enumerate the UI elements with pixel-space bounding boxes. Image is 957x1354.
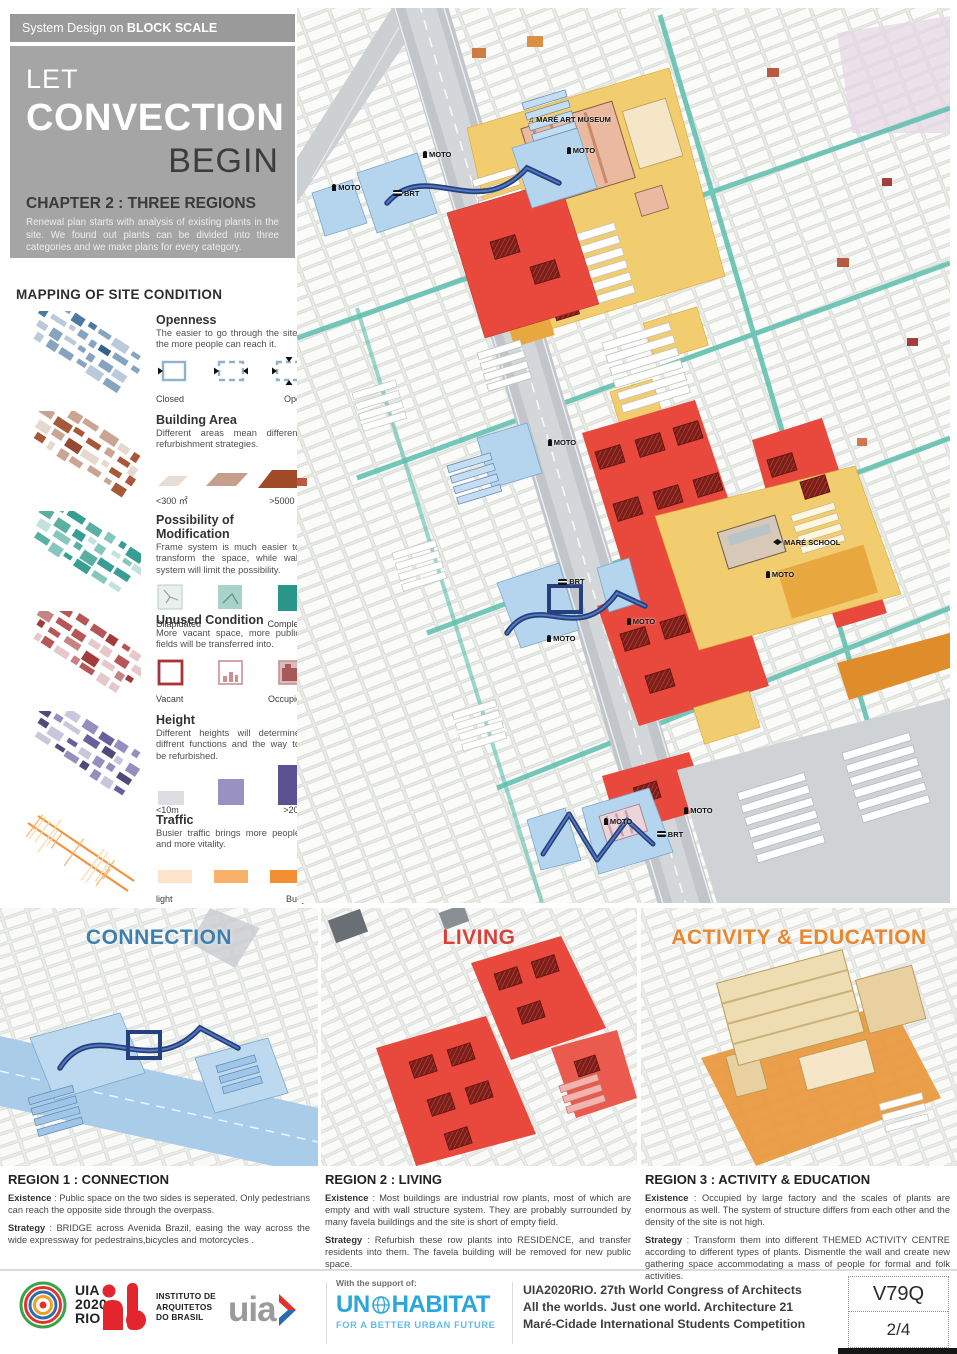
unhabitat-logo: With the support of: UN HABITAT FOR A BE… [336, 1278, 506, 1330]
music-icon: ♫ [528, 116, 534, 123]
map-label-text: MOTO [633, 617, 655, 626]
region-2-strategy: Strategy : Refurbish these row plants in… [325, 1234, 631, 1270]
legend-item-name: Possibility of Modification [156, 513, 300, 541]
legend-item-name: Traffic [156, 813, 300, 827]
map-label: MOTO [548, 438, 576, 447]
legend-item-desc: Busier traffic brings more people and mo… [156, 828, 300, 851]
map-label: MOTO [627, 617, 655, 626]
legend-icon-row [156, 654, 300, 696]
map-label: MOTO [332, 183, 360, 192]
moto-icon [547, 635, 551, 642]
map-label: ♫MARÉ ART MUSEUM [528, 115, 611, 124]
legend-label-left: Closed [156, 394, 184, 404]
board-page-number: 2/4 [849, 1312, 948, 1347]
chapter-title: CHAPTER 2 : THREE REGIONS [26, 195, 279, 213]
legend-item-name: Openness [156, 313, 300, 327]
congress-line2: All the worlds. Just one world. Architec… [523, 1299, 805, 1316]
uia2020rio-rings-icon [18, 1280, 68, 1330]
iab-line3: DO BRASIL [156, 1312, 216, 1322]
unhabitat-tagline: FOR A BETTER URBAN FUTURE [336, 1320, 506, 1330]
map-label: MOTO [423, 150, 451, 159]
kicker-bar: System Design on BLOCK SCALE [10, 14, 295, 42]
existence-text: : Public space on the two sides is seper… [8, 1193, 310, 1215]
strategy-text: : Refurbish these row plants into RESIDE… [325, 1235, 631, 1269]
title-line-3: BEGIN [26, 142, 279, 181]
moto-icon [548, 439, 552, 446]
legend-swatch-icons [156, 354, 316, 396]
legend-thumb-area [16, 411, 141, 501]
legend-icon-row [156, 354, 300, 396]
bus-icon [393, 190, 402, 196]
legend-item-name: Height [156, 713, 300, 727]
map-label: MOTO [567, 146, 595, 155]
legend-label-left: light [156, 894, 173, 904]
legend-thumb-unused [16, 611, 141, 701]
legend-thumb-modification [16, 511, 141, 601]
region-2-text: REGION 2 : LIVING Existence : Most build… [325, 1172, 631, 1276]
legend-item-area: Building AreaDifferent areas mean differ… [16, 405, 300, 502]
legend-item-desc: Frame system is much easier to transform… [156, 542, 300, 576]
legend-swatch-icons [156, 854, 316, 896]
uia-chevron-icon [276, 1293, 300, 1327]
legend-item-unused: Unused ConditionMore vacant space, more … [16, 605, 300, 702]
site-map-graphic [297, 8, 950, 903]
panel-connection: CONNECTION [0, 908, 318, 1166]
map-label-text: MOTO [690, 806, 712, 815]
region-1-title: REGION 1 : CONNECTION [8, 1172, 310, 1187]
region-3-title: REGION 3 : ACTIVITY & EDUCATION [645, 1172, 950, 1187]
legend-thumb-height [16, 711, 141, 801]
site-map: ♫MARÉ ART MUSEUMMOTOMOTOMOTOBRTMOTOBRTMO… [297, 8, 950, 903]
strategy-label: Strategy [645, 1235, 682, 1245]
existence-label: Existence [8, 1193, 51, 1203]
map-label-text: BRT [668, 830, 683, 839]
map-label-text: MOTO [573, 146, 595, 155]
bus-icon [657, 831, 666, 837]
legend-item-desc: Different heights will determine diffren… [156, 728, 300, 762]
footer: UIA 2020 RIO INSTITUTO DE ARQUITETOS DO … [0, 1272, 957, 1354]
map-label-text: MOTO [553, 634, 575, 643]
legend-item-modification: Possibility of ModificationFrame system … [16, 505, 300, 602]
iab-line2: ARQUITETOS [156, 1302, 216, 1312]
map-label-text: MOTO [610, 817, 632, 826]
uia-wordmark-text: uia [228, 1290, 276, 1330]
strategy-text: : BRIDGE across Avenida Brazil, easing t… [8, 1223, 310, 1245]
title-box: LET CONVECTION BEGIN CHAPTER 2 : THREE R… [10, 46, 295, 258]
moto-icon [684, 807, 688, 814]
legend-item-name: Building Area [156, 413, 300, 427]
uia2020rio-logo: UIA 2020 RIO [18, 1280, 107, 1330]
poster-page: System Design on BLOCK SCALE LET CONVECT… [0, 0, 957, 1354]
legend-icon-row [156, 854, 300, 896]
bus-icon [558, 579, 567, 585]
region-1-strategy: Strategy : BRIDGE across Avenida Brazil,… [8, 1222, 310, 1246]
legend-icon-row [156, 765, 300, 807]
map-label: BRT [558, 577, 584, 586]
map-label: MOTO [547, 634, 575, 643]
iab-line1: INSTITUTO DE [156, 1291, 216, 1301]
moto-icon [567, 147, 571, 154]
map-label: BRT [657, 830, 683, 839]
legend-item-name: Unused Condition [156, 613, 300, 627]
existence-text: : Occupied by large factory and the scal… [645, 1193, 950, 1227]
iab-logo: INSTITUTO DE ARQUITETOS DO BRASIL [100, 1282, 216, 1332]
legend-swatch-icons [156, 765, 316, 807]
kicker-prefix: System Design on [22, 21, 127, 35]
legend-icon-row [156, 454, 300, 496]
legend-swatch-icons [156, 454, 316, 496]
un-globe-icon [371, 1295, 391, 1315]
moto-icon [332, 184, 336, 191]
map-label: MOTO [766, 570, 794, 579]
legend-thumb-traffic [16, 811, 141, 901]
map-label-text: BRT [404, 189, 419, 198]
panel-living: LIVING [321, 908, 637, 1166]
legend-item-desc: The easier to go through the site, the m… [156, 328, 300, 351]
legend-item-openness: OpennessThe easier to go through the sit… [16, 305, 300, 402]
map-label-text: MOTO [338, 183, 360, 192]
footer-divider [0, 1269, 957, 1271]
panel-activity-education: ACTIVITY & EDUCATION [641, 908, 957, 1166]
map-label-text: MARÉ ART MUSEUM [536, 115, 611, 124]
uia-wordmark-logo: uia [228, 1290, 300, 1330]
support-label: With the support of: [336, 1278, 506, 1288]
congress-line1: UIA2020RIO. 27th World Congress of Archi… [523, 1282, 805, 1299]
region-1-existence: Existence : Public space on the two side… [8, 1192, 310, 1216]
region-2-title: REGION 2 : LIVING [325, 1172, 631, 1187]
moto-icon [627, 618, 631, 625]
title-line-1: LET [26, 64, 279, 95]
congress-line3: Maré-Cidade International Students Compe… [523, 1316, 805, 1333]
panel-title-living: LIVING [442, 926, 515, 950]
moto-icon [423, 151, 427, 158]
moto-icon [604, 818, 608, 825]
legend-item-desc: More vacant space, more public fields wi… [156, 628, 300, 651]
scan-edge [838, 1348, 957, 1354]
legend-label-left: Vacant [156, 694, 183, 704]
board-code-box: V79Q 2/4 [848, 1276, 949, 1348]
strategy-label: Strategy [325, 1235, 362, 1245]
map-label-text: MOTO [772, 570, 794, 579]
legend-thumb-openness [16, 311, 141, 401]
legend-item-traffic: TrafficBusier traffic brings more people… [16, 805, 300, 902]
title-line-2: CONVECTION [26, 97, 279, 140]
map-label: MOTO [684, 806, 712, 815]
congress-text: UIA2020RIO. 27th World Congress of Archi… [523, 1282, 805, 1333]
region-1-text: REGION 1 : CONNECTION Existence : Public… [8, 1172, 310, 1252]
map-label-text: MARÉ SCHOOL [784, 538, 840, 547]
school-icon [773, 539, 782, 546]
kicker-bold: BLOCK SCALE [127, 21, 217, 35]
unhabitat-un: UN [336, 1291, 370, 1319]
map-label: BRT [393, 189, 419, 198]
panel-title-connection: CONNECTION [86, 926, 232, 950]
map-label-text: MOTO [429, 150, 451, 159]
region-3-existence: Existence : Occupied by large factory an… [645, 1192, 950, 1228]
map-label: MOTO [604, 817, 632, 826]
region-2-existence: Existence : Most buildings are industria… [325, 1192, 631, 1228]
legend-title: MAPPING OF SITE CONDITION [16, 287, 300, 302]
map-label-text: MOTO [554, 438, 576, 447]
iab-mark-icon [100, 1282, 148, 1332]
chapter-intro: Renewal plan starts with analysis of exi… [26, 217, 279, 255]
strategy-label: Strategy [8, 1223, 45, 1233]
existence-text: : Most buildings are industrial row plan… [325, 1193, 631, 1227]
legend: MAPPING OF SITE CONDITION OpennessThe ea… [16, 287, 300, 902]
legend-item-height: HeightDifferent heights will determine d… [16, 705, 300, 802]
existence-label: Existence [645, 1193, 688, 1203]
map-label-text: BRT [569, 577, 584, 586]
board-code: V79Q [849, 1277, 948, 1312]
moto-icon [766, 571, 770, 578]
panel-title-activity: ACTIVITY & EDUCATION [671, 926, 926, 950]
unhabitat-habitat: HABITAT [392, 1291, 490, 1319]
legend-swatch-icons [156, 654, 316, 696]
map-label: MARÉ SCHOOL [773, 538, 840, 547]
legend-item-desc: Different areas mean different refurbish… [156, 428, 300, 451]
existence-label: Existence [325, 1193, 368, 1203]
